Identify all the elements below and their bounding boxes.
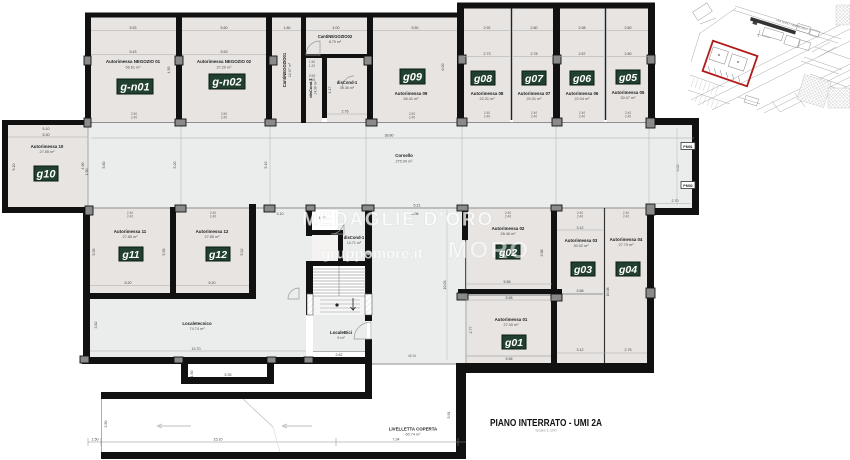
svg-text:g11: g11 xyxy=(121,249,139,261)
svg-text:Autorimessa 06: Autorimessa 06 xyxy=(566,91,599,96)
svg-text:g-n01: g-n01 xyxy=(119,82,149,94)
svg-text:g12: g12 xyxy=(208,249,227,261)
svg-text:10.71 m²: 10.71 m² xyxy=(347,241,362,245)
svg-text:27.79 m²: 27.79 m² xyxy=(619,243,635,247)
svg-text:2.80: 2.80 xyxy=(625,26,632,30)
svg-text:3.12: 3.12 xyxy=(577,226,584,230)
svg-text:g09: g09 xyxy=(402,72,423,84)
svg-text:5.43: 5.43 xyxy=(130,50,137,54)
svg-text:2.40: 2.40 xyxy=(221,116,227,120)
svg-text:5.10: 5.10 xyxy=(264,162,268,169)
svg-text:2.78: 2.78 xyxy=(531,52,538,56)
svg-text:30.07 m²: 30.07 m² xyxy=(621,96,637,100)
svg-text:PM01: PM01 xyxy=(683,145,692,149)
svg-text:5.10: 5.10 xyxy=(12,164,16,171)
svg-text:14.36 m²: 14.36 m² xyxy=(314,80,318,94)
svg-text:1.50: 1.50 xyxy=(92,438,99,442)
svg-text:0.98: 0.98 xyxy=(309,78,315,82)
svg-text:g01: g01 xyxy=(504,337,523,349)
svg-text:22.04 m²: 22.04 m² xyxy=(575,97,591,101)
svg-text:2.40: 2.40 xyxy=(579,115,585,119)
svg-text:3.12: 3.12 xyxy=(577,348,584,352)
svg-text:Autorimessa NEGOZIO 01: Autorimessa NEGOZIO 01 xyxy=(106,59,161,64)
svg-text:20.31 m²: 20.31 m² xyxy=(527,97,543,101)
svg-text:5.32: 5.32 xyxy=(240,249,244,256)
svg-text:275.00 m²: 275.00 m² xyxy=(395,160,413,164)
svg-text:2.40: 2.40 xyxy=(625,115,631,119)
svg-text:Autorimessa 05: Autorimessa 05 xyxy=(612,90,645,95)
svg-text:g05: g05 xyxy=(618,72,637,84)
svg-text:5.20: 5.20 xyxy=(209,281,216,285)
svg-text:g10: g10 xyxy=(36,169,57,181)
svg-text:22.31 m²: 22.31 m² xyxy=(480,97,496,101)
svg-text:4.90: 4.90 xyxy=(81,163,85,170)
svg-text:13.70: 13.70 xyxy=(192,347,201,351)
svg-text:4.17: 4.17 xyxy=(328,87,332,94)
svg-text:Autorimessa 04: Autorimessa 04 xyxy=(610,237,643,242)
svg-text:27.85 m²: 27.85 m² xyxy=(123,235,139,239)
svg-text:74.74 m²: 74.74 m² xyxy=(190,327,206,331)
svg-text:5.30: 5.30 xyxy=(43,133,50,137)
svg-text:Autorimessa 07: Autorimessa 07 xyxy=(518,91,551,96)
svg-text:4.00: 4.00 xyxy=(333,26,340,30)
svg-text:Corsello: Corsello xyxy=(395,153,413,158)
svg-text:27.00 m²: 27.00 m² xyxy=(504,323,520,327)
svg-text:60.74 m²: 60.74 m² xyxy=(406,433,422,437)
svg-text:CantiNEGOZIO02: CantiNEGOZIO02 xyxy=(318,34,353,39)
svg-text:5.80: 5.80 xyxy=(102,162,106,169)
svg-text:2.92: 2.92 xyxy=(484,26,491,30)
svg-text:2.73: 2.73 xyxy=(484,52,491,56)
svg-text:2.62: 2.62 xyxy=(336,353,343,357)
svg-text:27.55 m²: 27.55 m² xyxy=(40,150,56,154)
svg-text:27.20 m²: 27.20 m² xyxy=(217,66,233,70)
svg-text:Autorimessa 02: Autorimessa 02 xyxy=(492,226,525,231)
svg-text:10.03: 10.03 xyxy=(443,281,447,290)
svg-text:56.41 m²: 56.41 m² xyxy=(404,97,420,101)
svg-text:5.20: 5.20 xyxy=(173,162,177,169)
svg-text:46.16: 46.16 xyxy=(408,354,416,358)
svg-text:16.36 m²: 16.36 m² xyxy=(340,86,355,90)
svg-text:16.08: 16.08 xyxy=(606,288,610,297)
svg-text:1.90: 1.90 xyxy=(85,169,89,176)
svg-text:28.46 m²: 28.46 m² xyxy=(501,232,517,236)
svg-text:2.40: 2.40 xyxy=(409,116,415,120)
svg-text:2.40: 2.40 xyxy=(505,215,511,219)
svg-text:5.10: 5.10 xyxy=(43,127,50,131)
svg-text:g03: g03 xyxy=(573,264,592,276)
svg-text:2.67: 2.67 xyxy=(579,52,586,56)
svg-text:Autorimessa 03: Autorimessa 03 xyxy=(565,238,598,243)
svg-text:2.40: 2.40 xyxy=(531,115,537,119)
svg-text:30.02 m²: 30.02 m² xyxy=(574,244,590,248)
svg-text:5.58: 5.58 xyxy=(506,296,513,300)
svg-text:Autorimessa 09: Autorimessa 09 xyxy=(395,91,428,96)
svg-text:PM02: PM02 xyxy=(683,184,692,188)
svg-text:5.53: 5.53 xyxy=(130,26,137,30)
svg-text:3.98: 3.98 xyxy=(540,250,544,257)
svg-text:4.50: 4.50 xyxy=(167,67,171,74)
svg-text:Autorimessa 11: Autorimessa 11 xyxy=(114,229,147,234)
svg-text:disCond-1: disCond-1 xyxy=(344,235,365,240)
svg-text:5.91: 5.91 xyxy=(447,412,451,419)
svg-text:Autorimessa 12: Autorimessa 12 xyxy=(196,229,229,234)
svg-text:15.10: 15.10 xyxy=(214,438,223,442)
svg-text:5.21: 5.21 xyxy=(414,204,421,208)
svg-text:5.56: 5.56 xyxy=(506,357,513,361)
svg-text:2.70: 2.70 xyxy=(672,199,679,203)
svg-text:5.20: 5.20 xyxy=(125,281,132,285)
svg-text:5.60: 5.60 xyxy=(221,26,228,30)
svg-text:LocaleBici: LocaleBici xyxy=(330,330,352,335)
svg-text:2.40: 2.40 xyxy=(577,215,583,219)
svg-text:2.80: 2.80 xyxy=(625,52,632,56)
svg-text:MEDAGLIE D'ORO: MEDAGLIE D'ORO xyxy=(302,210,494,231)
svg-text:1.20: 1.20 xyxy=(309,64,315,68)
svg-text:2.98: 2.98 xyxy=(579,26,586,30)
svg-text:1.80: 1.80 xyxy=(284,26,291,30)
svg-text:Scala 1:100: Scala 1:100 xyxy=(535,428,557,433)
svg-text:g07: g07 xyxy=(524,73,544,85)
svg-text:MORO: MORO xyxy=(448,237,531,264)
svg-text:2.40: 2.40 xyxy=(484,115,490,119)
svg-text:1.50: 1.50 xyxy=(190,371,194,378)
svg-text:5.50: 5.50 xyxy=(412,26,419,30)
svg-text:5.58: 5.58 xyxy=(504,280,511,284)
svg-text:2.80: 2.80 xyxy=(531,26,538,30)
svg-text:disCond-1: disCond-1 xyxy=(337,80,358,85)
svg-text:2.40: 2.40 xyxy=(623,215,629,219)
svg-text:g-n02: g-n02 xyxy=(211,77,241,89)
svg-text:g08: g08 xyxy=(473,73,492,85)
svg-text:6.00: 6.00 xyxy=(441,64,445,71)
svg-text:5.35: 5.35 xyxy=(162,249,166,256)
svg-text:3.82: 3.82 xyxy=(94,322,98,329)
svg-text:12.07 m²: 12.07 m² xyxy=(288,62,292,77)
svg-text:27.85 m²: 27.85 m² xyxy=(205,235,221,239)
svg-text:gruppomore.it: gruppomore.it xyxy=(321,246,423,263)
svg-text:9 m²: 9 m² xyxy=(337,336,345,340)
svg-text:5.65: 5.65 xyxy=(676,165,680,172)
svg-text:8.79 m²: 8.79 m² xyxy=(329,40,342,44)
svg-text:Autorimessa 08: Autorimessa 08 xyxy=(471,91,504,96)
svg-text:5.35: 5.35 xyxy=(92,249,96,256)
svg-text:Autorimessa 10: Autorimessa 10 xyxy=(31,144,64,149)
svg-text:38.80: 38.80 xyxy=(385,134,394,138)
svg-text:2.68: 2.68 xyxy=(577,289,584,293)
svg-text:2.40: 2.40 xyxy=(210,215,216,219)
svg-text:7.34: 7.34 xyxy=(393,438,400,442)
svg-text:LIVELLETTA COPERTA: LIVELLETTA COPERTA xyxy=(389,427,438,432)
svg-text:3.50: 3.50 xyxy=(104,421,108,428)
svg-text:g04: g04 xyxy=(618,264,637,276)
svg-text:2.40: 2.40 xyxy=(131,116,137,120)
svg-text:5.53: 5.53 xyxy=(221,50,228,54)
svg-text:3.10: 3.10 xyxy=(277,212,284,216)
svg-text:2.76: 2.76 xyxy=(342,110,349,114)
svg-text:2.75: 2.75 xyxy=(625,348,632,352)
svg-text:5.35: 5.35 xyxy=(225,373,232,377)
svg-text:Autorimessa NEGOZIO 02: Autorimessa NEGOZIO 02 xyxy=(197,59,252,64)
svg-text:Localetecnico: Localetecnico xyxy=(182,321,212,326)
svg-text:2.40: 2.40 xyxy=(127,215,133,219)
svg-text:56.61 m²: 56.61 m² xyxy=(126,66,142,70)
svg-text:Autorimessa 01: Autorimessa 01 xyxy=(495,317,528,322)
svg-text:CantiNEGOZIO01: CantiNEGOZIO01 xyxy=(282,52,287,87)
svg-text:2.77: 2.77 xyxy=(469,327,473,334)
svg-text:g06: g06 xyxy=(572,73,591,85)
